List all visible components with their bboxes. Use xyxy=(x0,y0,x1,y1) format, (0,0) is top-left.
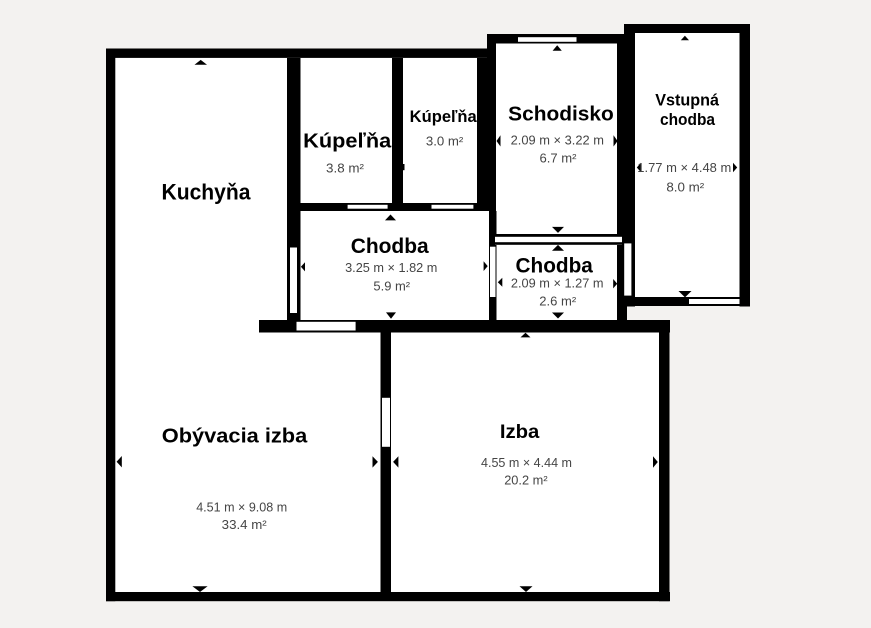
svg-text:5.9 m²: 5.9 m² xyxy=(373,278,410,293)
svg-text:6.7 m²: 6.7 m² xyxy=(540,150,578,165)
svg-text:Kuchyňa: Kuchyňa xyxy=(162,179,252,204)
svg-text:2.6 m²: 2.6 m² xyxy=(539,294,577,309)
svg-text:Izba: Izba xyxy=(500,422,540,443)
svg-text:Kúpeľňa: Kúpeľňa xyxy=(410,108,478,126)
svg-text:4.55 m × 4.44 m: 4.55 m × 4.44 m xyxy=(481,455,572,470)
svg-text:4.51 m × 9.08 m: 4.51 m × 9.08 m xyxy=(196,499,287,514)
svg-text:3.0 m²: 3.0 m² xyxy=(426,134,464,149)
svg-text:chodba: chodba xyxy=(660,111,716,129)
svg-text:2.09 m × 3.22 m: 2.09 m × 3.22 m xyxy=(511,133,604,148)
svg-text:Kúpeľňa: Kúpeľňa xyxy=(303,130,392,153)
svg-text:20.2 m²: 20.2 m² xyxy=(504,472,548,487)
svg-text:2.09 m × 1.27 m: 2.09 m × 1.27 m xyxy=(511,276,604,291)
svg-text:3.25 m × 1.82 m: 3.25 m × 1.82 m xyxy=(345,260,437,275)
svg-text:33.4 m²: 33.4 m² xyxy=(222,517,268,532)
svg-text:3.8 m²: 3.8 m² xyxy=(326,161,365,176)
svg-text:Vstupná: Vstupná xyxy=(655,92,720,110)
svg-text:1.77 m × 4.48 m: 1.77 m × 4.48 m xyxy=(637,160,731,175)
svg-text:Schodisko: Schodisko xyxy=(508,103,614,125)
svg-text:Obývacia izba: Obývacia izba xyxy=(162,426,308,448)
svg-text:Chodba: Chodba xyxy=(351,235,429,258)
svg-text:Chodba: Chodba xyxy=(516,255,594,278)
svg-text:8.0 m²: 8.0 m² xyxy=(666,180,705,195)
